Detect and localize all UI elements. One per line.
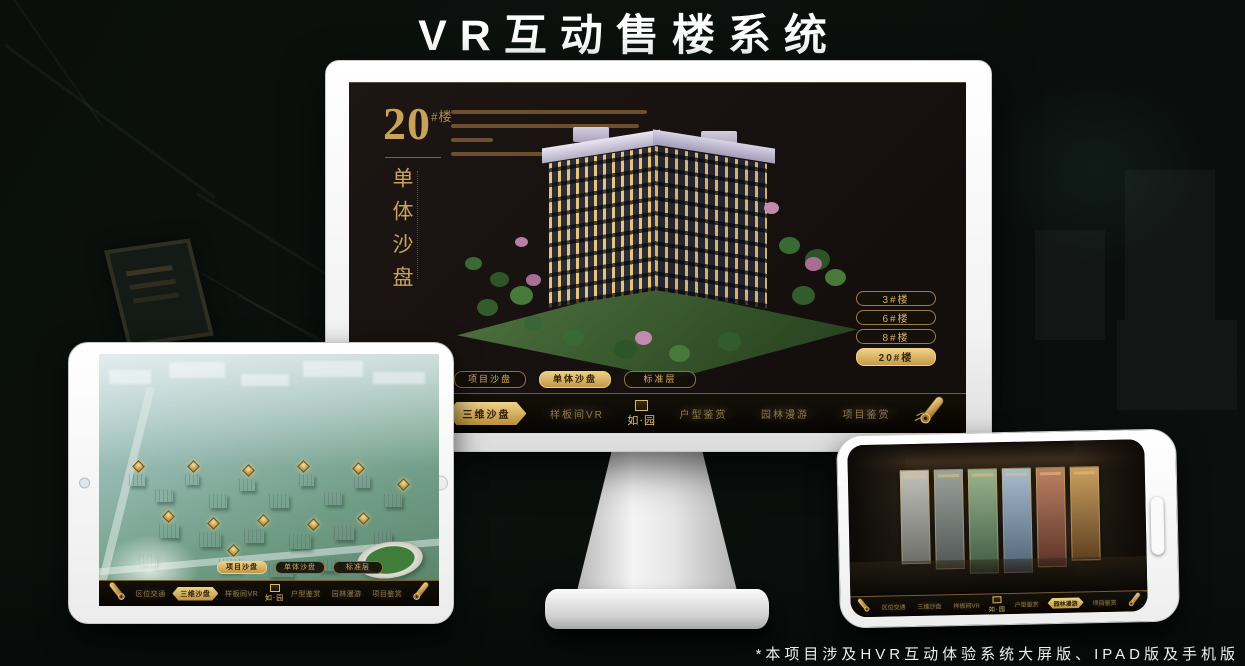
building-button-6[interactable]: 6#楼 — [856, 310, 936, 325]
building-3d-model[interactable] — [457, 141, 857, 381]
building-selector: 3#楼 6#楼 8#楼 20#楼 — [856, 291, 936, 366]
model-facade-left — [549, 147, 655, 308]
ruyuan-logo-text: 如·园 — [265, 593, 284, 603]
subtab-standard-floor[interactable]: 标准层 — [624, 371, 696, 388]
nav-item-showroom-vr[interactable]: 样板间VR — [950, 599, 983, 611]
building-button-20-active[interactable]: 20#楼 — [856, 348, 936, 366]
gallery-panel[interactable] — [1070, 466, 1101, 561]
model-trees-green — [465, 257, 482, 270]
nav-item-showroom-vr[interactable]: 样板间VR — [221, 587, 262, 601]
aerial-building — [354, 476, 370, 488]
building-button-8[interactable]: 8#楼 — [856, 329, 936, 344]
footnote: *本项目涉及HVR互动体验系统大屏版、IPAD版及手机版 — [756, 643, 1239, 664]
aerial-building — [334, 526, 354, 540]
ruyuan-logo[interactable]: 如·园 — [627, 400, 656, 428]
bg-building-silhouette — [1035, 230, 1105, 340]
building-marker[interactable] — [257, 514, 270, 527]
phone-screen: 区位交通 三维沙盘 样板间VR 如·园 户型鉴赏 园林漫游 项目鉴赏 — [847, 439, 1148, 617]
scroll-menu-icon[interactable] — [1125, 590, 1143, 608]
building-number-headline: 20#楼 — [383, 97, 453, 150]
bg-map-road — [4, 44, 216, 199]
scroll-menu-icon[interactable] — [854, 596, 872, 614]
ruyuan-logo-text: 如·园 — [627, 412, 656, 428]
tablet-screen: 项目沙盘 单体沙盘 标准层 区位交通 三维沙盘 样板间VR 如·园 户型鉴赏 园… — [99, 354, 439, 606]
headline-divider — [385, 157, 441, 158]
monitor-stand-neck — [577, 449, 737, 591]
nav-item-3d-sandtable[interactable]: 三维沙盘 — [914, 600, 944, 612]
ruyuan-seal-icon — [635, 400, 648, 411]
nav-item-garden-roam-active[interactable]: 园林漫游 — [1047, 597, 1083, 609]
model-building — [549, 141, 769, 306]
poster-canvas: VR互动售楼系统 20#楼 单体沙盘 — [0, 0, 1245, 666]
aerial-building — [155, 489, 173, 502]
building-button-3[interactable]: 3#楼 — [856, 291, 936, 306]
bg-certificate-plaque — [104, 238, 214, 347]
bg-building-silhouette — [1117, 320, 1237, 410]
aerial-building — [384, 494, 402, 507]
nav-item-project-view[interactable]: 项目鉴赏 — [832, 402, 900, 425]
nav-item-3d-sandtable-active[interactable]: 三维沙盘 — [446, 402, 526, 425]
aerial-building — [209, 494, 227, 508]
building-number-suffix: #楼 — [431, 109, 453, 124]
nav-item-3d-sandtable-active[interactable]: 三维沙盘 — [172, 587, 218, 601]
ruyuan-logo[interactable]: 如·园 — [265, 584, 284, 603]
gallery-panel[interactable] — [1002, 468, 1033, 574]
phone-side-pill — [1150, 496, 1164, 554]
monitor-sub-tabs: 项目沙盘 单体沙盘 标准层 — [454, 371, 696, 388]
aerial-building — [239, 479, 255, 491]
nav-item-project-view[interactable]: 项目鉴赏 — [1089, 596, 1119, 608]
gallery-panel[interactable] — [934, 469, 965, 570]
nav-item-floorplan[interactable]: 户型鉴赏 — [670, 402, 738, 425]
aerial-building — [185, 474, 199, 485]
subtab-single-sandtable-active[interactable]: 单体沙盘 — [539, 371, 611, 388]
model-facade-right — [655, 146, 767, 308]
nav-item-project-view[interactable]: 项目鉴赏 — [368, 587, 406, 601]
tablet-bottom-nav: 区位交通 三维沙盘 样板间VR 如·园 户型鉴赏 园林漫游 项目鉴赏 — [99, 580, 439, 606]
ruyuan-seal-icon — [993, 596, 1002, 603]
aerial-bg-block — [241, 374, 289, 386]
building-marker[interactable] — [162, 510, 175, 523]
building-marker[interactable] — [357, 512, 370, 525]
ruyuan-logo[interactable]: 如·园 — [989, 596, 1006, 613]
headline-subtitle-vertical: 单体沙盘 — [387, 167, 417, 299]
subtab-single-sandtable[interactable]: 单体沙盘 — [275, 561, 325, 574]
aerial-bg-block — [373, 372, 425, 384]
nav-item-floorplan[interactable]: 户型鉴赏 — [1012, 598, 1042, 610]
phone-mockup: 区位交通 三维沙盘 样板间VR 如·园 户型鉴赏 园林漫游 项目鉴赏 — [836, 428, 1180, 628]
nav-item-garden-roam[interactable]: 园林漫游 — [751, 402, 819, 425]
aerial-building — [299, 474, 314, 486]
subtab-project-sandtable[interactable]: 项目沙盘 — [454, 371, 526, 388]
ruyuan-seal-icon — [270, 584, 280, 592]
scroll-menu-icon[interactable] — [914, 392, 950, 428]
gallery-panel[interactable] — [1036, 467, 1067, 568]
gallery-panel[interactable] — [968, 468, 999, 574]
aerial-building — [244, 529, 264, 543]
scroll-menu-icon[interactable] — [409, 579, 433, 603]
building-marker[interactable] — [397, 478, 410, 491]
page-title: VR互动售楼系统 — [0, 1, 1245, 63]
aerial-building — [269, 494, 289, 508]
nav-item-floorplan[interactable]: 户型鉴赏 — [287, 587, 325, 601]
scroll-menu-icon[interactable] — [105, 579, 129, 603]
ruyuan-logo-text: 如·园 — [989, 604, 1006, 613]
description-text-line — [451, 124, 639, 128]
building-marker[interactable] — [307, 518, 320, 531]
aerial-building — [129, 474, 145, 486]
nav-item-garden-roam[interactable]: 园林漫游 — [328, 587, 366, 601]
model-trees-pink — [515, 237, 528, 247]
gallery-panel[interactable] — [900, 470, 931, 565]
aerial-bg-block — [169, 362, 225, 378]
aerial-bg-block — [303, 361, 363, 377]
aerial-building — [289, 534, 311, 549]
description-text-line — [451, 110, 647, 114]
bg-building-silhouette — [1125, 170, 1215, 320]
building-marker[interactable] — [227, 544, 240, 557]
monitor-stand-base — [545, 589, 769, 629]
aerial-bg-block — [109, 370, 151, 384]
nav-item-location-traffic[interactable]: 区位交通 — [878, 601, 908, 613]
subtab-standard-floor[interactable]: 标准层 — [333, 561, 383, 574]
tablet-camera-icon — [79, 478, 90, 489]
nav-item-showroom-vr[interactable]: 样板间VR — [540, 402, 614, 425]
subtab-project-sandtable-active[interactable]: 项目沙盘 — [217, 561, 267, 574]
aerial-building — [324, 492, 342, 505]
headline-english-caption — [417, 171, 419, 279]
nav-item-location-traffic[interactable]: 区位交通 — [132, 587, 170, 601]
tablet-sub-tabs: 项目沙盘 单体沙盘 标准层 — [217, 561, 383, 574]
tablet-mockup: 项目沙盘 单体沙盘 标准层 区位交通 三维沙盘 样板间VR 如·园 户型鉴赏 园… — [68, 342, 454, 624]
